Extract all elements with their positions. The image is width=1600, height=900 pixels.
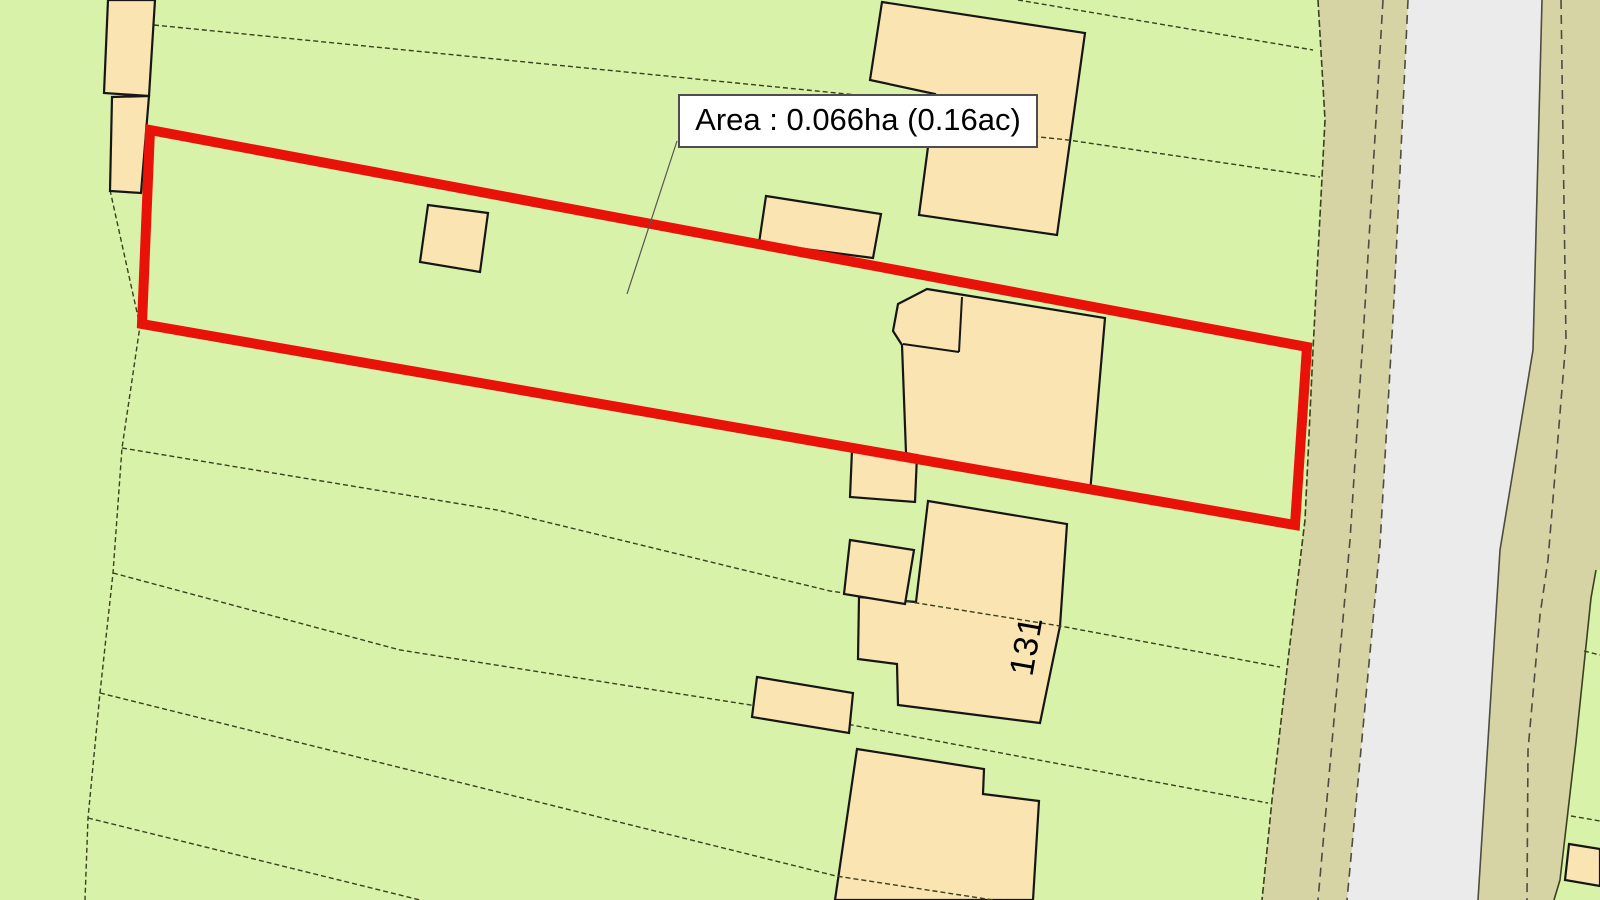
shed-south-2 [844,540,914,604]
outbuilding-nw-1 [104,0,155,96]
building-se [1565,844,1600,886]
area-measurement-label[interactable]: Area : 0.066ha (0.16ac) [678,94,1038,148]
shed-in-plot [420,205,488,272]
site-plan-map: Area : 0.066ha (0.16ac) 131 [0,0,1600,900]
